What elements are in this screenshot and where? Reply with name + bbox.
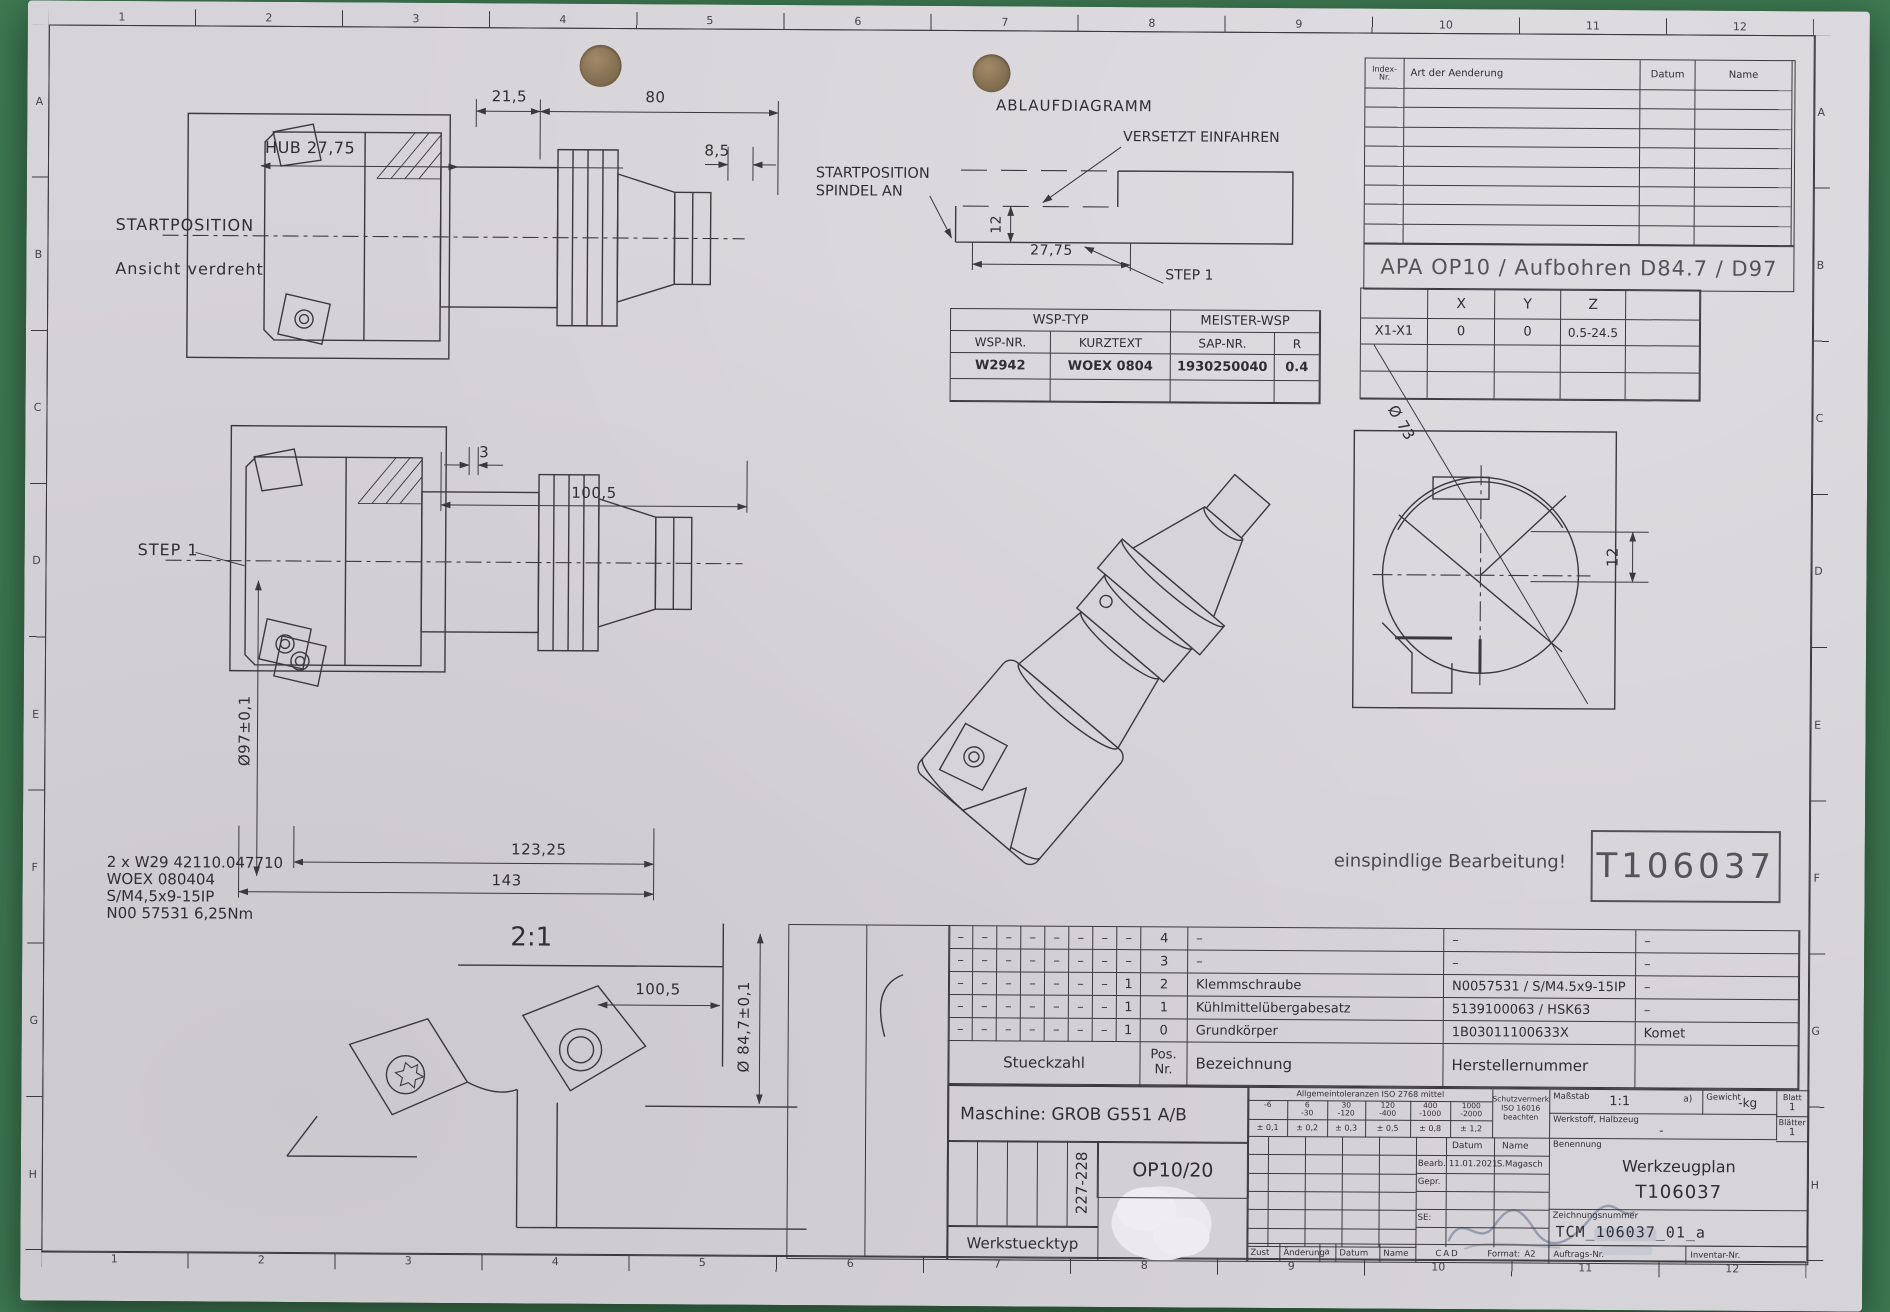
parts-table: –––––––– 4 – – – –––––––– 3 – – – ––––––… [947, 925, 1800, 1090]
qty-cell: – [949, 926, 973, 949]
parts-footer-qty: Stueckzahl [948, 1041, 1140, 1085]
appr-name-header: Name [1502, 1141, 1529, 1151]
revision-cell [1404, 205, 1640, 226]
qty-cell: – [949, 972, 973, 995]
revision-cell [1404, 166, 1640, 187]
wsp-col-sap: SAP-NR. [1171, 332, 1275, 355]
qty-cell: – [1093, 973, 1117, 996]
dim-21-5: 21,5 [492, 87, 528, 105]
revision-header-date: Datum [1640, 60, 1695, 90]
name2-label: Name [1383, 1249, 1408, 1259]
xyz-cell [1626, 373, 1700, 400]
maker-cell: Komet [1636, 1022, 1799, 1046]
qty-cell: – [949, 995, 973, 1018]
revision-cell [1404, 147, 1640, 168]
xyz-value-x: 0 [1428, 319, 1495, 345]
note-line-2: WOEX 080404 [107, 870, 216, 889]
revision-cell [1695, 110, 1792, 130]
detail-scale-label: 2:1 [510, 922, 552, 952]
werkstoff-label: Werkstoff, Halbzeug [1553, 1115, 1639, 1126]
blatt-cell: Blatt 1 [1776, 1091, 1808, 1117]
qty-cell: – [1021, 926, 1045, 949]
maker-cell: – [1636, 976, 1799, 1000]
wsp-value-kurztext: WOEX 0804 [1051, 354, 1171, 381]
dim-dia-97: Ø97±0,1 [235, 695, 253, 766]
xyz-header-y: Y [1495, 289, 1561, 319]
zeichnungsnummer-cell: Zeichnungsnummer TCM_106037_01_a [1548, 1209, 1807, 1248]
wsp-header-meister: MEISTER-WSP [1171, 310, 1320, 333]
gewicht-cell: Gewicht -kg [1702, 1091, 1777, 1115]
qty-cell: – [1069, 973, 1093, 996]
revision-cell [1404, 108, 1640, 129]
qty-cell: – [973, 995, 997, 1018]
massstab-value: 1:1 [1609, 1094, 1630, 1109]
wsp-header-typ: WSP-TYP [951, 309, 1171, 332]
revision-cell [1365, 205, 1404, 225]
maker-cell: – [1636, 930, 1799, 954]
benennung-line1: Werkzeugplan [1622, 1157, 1736, 1177]
wsp-col-r: R [1275, 333, 1320, 355]
revision-cell [1365, 108, 1404, 128]
tol-value: ± 0,1 [1248, 1123, 1287, 1132]
blaetter-value: 1 [1776, 1127, 1808, 1138]
xyz-cell [1561, 373, 1626, 400]
parts-footer-maker [1635, 1045, 1798, 1089]
revision-cell [1365, 89, 1404, 109]
bearb-datum: 11.01.2021 [1449, 1159, 1498, 1169]
revision-cell [1695, 188, 1792, 208]
blatt-value: 1 [1776, 1102, 1808, 1113]
a-label: a [1324, 1247, 1329, 1257]
parts-footer-pos: Pos. Nr. [1140, 1042, 1187, 1085]
startposition-label: STARTPOSITION [116, 215, 255, 235]
xyz-row-label: X1-X1 [1361, 319, 1428, 345]
revision-table: Index- Nr. Art der Aenderung Datum Name [1364, 58, 1796, 248]
revision-header-index: Index- Nr. [1365, 59, 1404, 89]
qty-cell: – [1069, 950, 1093, 973]
tol-range: 400 -1000 [1410, 1102, 1450, 1119]
tool-id-text: T106037 [1596, 846, 1775, 887]
tol-value: ± 0,5 [1365, 1124, 1410, 1133]
name-cell: Kühlmittelübergabesatz [1188, 996, 1444, 1021]
blaetter-label: Blätter [1776, 1118, 1808, 1127]
tol-range: 1000 -2000 [1450, 1102, 1492, 1119]
wsp-cell [951, 379, 1051, 402]
revision-cell [1695, 129, 1792, 149]
tb-grid-line [1248, 1228, 1416, 1230]
datum2-label: Datum [1339, 1248, 1368, 1258]
mfr-cell: 5139100063 / HSK63 [1444, 998, 1636, 1022]
tb-grid-line [1248, 1209, 1416, 1211]
name-cell: – [1188, 950, 1444, 975]
xyz-value-y: 0 [1495, 319, 1561, 345]
qty-cell: – [1045, 950, 1069, 973]
maker-cell: – [1636, 999, 1799, 1023]
wsp-col-nr: WSP-NR. [951, 331, 1051, 354]
qty-cell: – [973, 949, 997, 972]
revision-cell [1640, 187, 1695, 207]
wsp-value-nr: W2942 [951, 353, 1051, 380]
qty-cell: – [997, 995, 1021, 1018]
cad-label: CAD [1435, 1249, 1459, 1259]
op-cell: OP10/20 [1097, 1141, 1249, 1199]
wsp-cell [1051, 380, 1171, 403]
schutz-line: Schutzvermerk [1492, 1094, 1549, 1103]
machine-label: Maschine: GROB G551 A/B [948, 1104, 1187, 1125]
revision-cell [1404, 186, 1640, 207]
revision-cell [1695, 149, 1792, 169]
tol-range: 6 -30 [1287, 1101, 1327, 1118]
ablauf-title: ABLAUFDIAGRAMM [996, 96, 1153, 115]
dim-27-75: 27,75 [1030, 243, 1073, 259]
note-line-4: N00 57531 6,25Nm [106, 904, 253, 923]
revision-cell [1640, 129, 1695, 149]
pos-cell: 0 [1141, 1019, 1188, 1042]
tol-value: ± 0,8 [1410, 1124, 1450, 1133]
revision-cell [1640, 90, 1695, 110]
blatt-label: Blatt [1776, 1093, 1808, 1102]
auftrag-label: Auftrags-Nr. [1553, 1250, 1604, 1260]
dim-143: 143 [491, 871, 521, 889]
startposition-spindel-label: STARTPOSITION [816, 165, 930, 182]
qty-cell: 1 [1117, 1019, 1141, 1042]
werkstueck-range: 227-228 [1073, 1151, 1091, 1214]
bearb-name: S.Magasch [1497, 1159, 1543, 1169]
xyz-cell [1428, 372, 1495, 399]
qty-cell: – [1117, 950, 1141, 973]
xyz-cell [1495, 345, 1561, 372]
parts-footer-mfr: Herstellernummer [1443, 1044, 1635, 1088]
se-label: SE: [1418, 1213, 1432, 1223]
wsp-value-sap: 1930250040 [1171, 354, 1275, 381]
revision-cell [1404, 89, 1640, 110]
xyz-value-z: 0.5-24.5 [1561, 320, 1626, 346]
qty-cell: – [1045, 1019, 1069, 1042]
tol-value: ± 0,3 [1327, 1123, 1365, 1132]
qty-cell: – [1117, 927, 1141, 950]
tool-id-box: T106037 [1591, 830, 1781, 903]
gewicht-label: Gewicht [1706, 1093, 1741, 1103]
xyz-cell [1626, 320, 1700, 346]
dim-12-ablauf: 12 [989, 215, 1005, 234]
pos-cell: 2 [1141, 973, 1188, 996]
dim-hub: HUB 27,75 [265, 138, 355, 158]
qty-cell: – [1093, 996, 1117, 1019]
dim-3: 3 [479, 443, 489, 461]
name-cell: – [1188, 927, 1444, 952]
xyz-cell [1626, 290, 1700, 320]
xyz-cell [1495, 372, 1561, 399]
dim-12-front: 12 [1604, 547, 1622, 567]
pos-cell: 3 [1141, 950, 1188, 973]
qty-cell: – [997, 972, 1021, 995]
revision-cell [1640, 168, 1695, 188]
mfr-cell: 1B03011100633X [1444, 1021, 1636, 1045]
tb-grid-line [1248, 1173, 1416, 1175]
aenderung-label: Änderung [1283, 1248, 1325, 1258]
tolerance-title: Allgemeintoleranzen ISO 2768 mittel [1248, 1089, 1492, 1099]
qty-cell: – [1069, 927, 1093, 950]
step1-label-ablauf: STEP 1 [1165, 267, 1213, 283]
tol-value: ± 0,2 [1287, 1123, 1327, 1132]
xyz-table: X Y Z X1-X1 0 0 0.5-24.5 [1360, 288, 1702, 402]
dim-80: 80 [645, 88, 665, 106]
appr-line [1416, 1227, 1549, 1229]
machine-row: Maschine: GROB G551 A/B [947, 1085, 1249, 1144]
dim-dia-84-7: Ø 84,7±0,1 [734, 981, 753, 1073]
bearb-label: Bearb. [1418, 1159, 1446, 1169]
versetzt-einfahren-label: VERSETZT EINFAHREN [1123, 129, 1280, 146]
dim-123-25: 123,25 [511, 840, 567, 858]
xyz-cell [1361, 345, 1428, 372]
tb-left-grid [1247, 1136, 1417, 1248]
name-cell: Grundkörper [1188, 1019, 1444, 1044]
maker-cell: – [1636, 953, 1799, 977]
tbb-line [1685, 1247, 1686, 1265]
zust-label: Zust [1250, 1248, 1269, 1258]
mfr-cell: N0057531 / S/M4.5x9-15IP [1444, 975, 1636, 999]
znr-value: TCM_106037_01_a [1555, 1223, 1706, 1242]
revision-cell [1695, 168, 1792, 188]
werkstoff-value: - [1659, 1123, 1663, 1137]
mfr-cell: – [1444, 929, 1636, 953]
revision-cell [1640, 148, 1695, 168]
werkstoff-cell: Werkstoff, Halbzeug - [1549, 1113, 1777, 1140]
tolerance-table: Allgemeintoleranzen ISO 2768 mittel -6 6… [1248, 1088, 1493, 1138]
dim-8-5: 8,5 [704, 142, 729, 160]
appr-line [1416, 1209, 1549, 1211]
tbb-line [1415, 1245, 1416, 1263]
tbb-line [1279, 1244, 1280, 1262]
tbb-line [1548, 1246, 1549, 1264]
qty-cell: – [1093, 1019, 1117, 1042]
schutz-line: ISO 16016 [1492, 1103, 1549, 1112]
qty-cell: – [997, 1018, 1021, 1041]
tb-grid-line [1248, 1191, 1416, 1193]
drawing-content: 1 2 3 4 5 6 7 8 9 10 11 12 1 2 3 4 5 6 7… [20, 0, 1870, 1311]
revision-cell [1365, 147, 1404, 167]
format-value: A2 [1524, 1250, 1535, 1260]
wsp-cell [1275, 381, 1320, 403]
spindel-an-label: SPINDEL AN [816, 183, 903, 200]
qty-cell: – [1093, 950, 1117, 973]
benennung-cell: Benennung Werkzeugplan T106037 [1549, 1138, 1808, 1212]
xyz-header-x: X [1428, 289, 1495, 319]
empty-side-box [786, 924, 950, 1260]
xyz-cell [1626, 346, 1700, 373]
op-label: OP10/20 [1132, 1159, 1213, 1181]
gewicht-value: -kg [1738, 1096, 1757, 1110]
revision-cell [1695, 226, 1792, 246]
dim-100-5-v1: 100,5 [571, 484, 617, 502]
appr-line [1416, 1191, 1549, 1193]
qty-cell: – [1045, 973, 1069, 996]
revision-cell [1365, 166, 1404, 186]
dim-100-5-detail: 100,5 [635, 980, 681, 998]
name-cell: Klemmschraube [1188, 973, 1444, 998]
appr-datum-header: Datum [1452, 1141, 1483, 1151]
wsp-col-kurztext: KURZTEXT [1051, 332, 1171, 355]
revision-header-name: Name [1695, 61, 1792, 92]
benennung-label: Benennung [1553, 1140, 1602, 1150]
revision-cell [1365, 127, 1404, 147]
format-label: Format: [1487, 1249, 1520, 1259]
tb-bottom-row: Zust Änderung a Datum Name CAD Format: A… [1247, 1243, 1807, 1265]
tbb-line [1335, 1244, 1336, 1262]
qty-cell: – [973, 1018, 997, 1041]
operation-banner: APA OP10 / Aufbohren D84.7 / D97 [1363, 243, 1794, 293]
step1-label-view2: STEP 1 [138, 540, 199, 559]
drawing-sheet: 1 2 3 4 5 6 7 8 9 10 11 12 1 2 3 4 5 6 7… [20, 0, 1870, 1311]
ansicht-verdreht-label: Ansicht verdreht [115, 259, 264, 279]
revision-cell [1640, 226, 1695, 246]
qty-cell: – [1021, 972, 1045, 995]
appr-line [1416, 1155, 1549, 1157]
pos-cell: 4 [1141, 927, 1188, 950]
qty-cell: – [949, 1018, 973, 1041]
qty-cell: – [1045, 927, 1069, 950]
qty-cell: – [997, 926, 1021, 949]
revision-cell [1695, 207, 1792, 227]
qty-cell: – [1069, 1019, 1093, 1042]
wsp-value-r: 0.4 [1275, 355, 1320, 381]
wsp-table: WSP-TYP MEISTER-WSP WSP-NR. KURZTEXT SAP… [950, 308, 1322, 404]
revision-cell [1404, 128, 1640, 149]
qty-cell: – [1069, 996, 1093, 1019]
schutz-line: beachten [1492, 1112, 1549, 1121]
massstab-label: Maßstab [1553, 1092, 1589, 1102]
tb-grid-line [1248, 1154, 1416, 1156]
revision-cell [1640, 207, 1695, 227]
tbb-line [1379, 1245, 1380, 1263]
qty-cell: – [1045, 996, 1069, 1019]
qty-cell: – [973, 972, 997, 995]
tol-range: 120 -400 [1365, 1102, 1410, 1119]
tol-line [1248, 1119, 1492, 1121]
qty-cell: – [1021, 1018, 1045, 1041]
benennung-line2: T106037 [1635, 1182, 1722, 1204]
inventar-label: Inventar-Nr. [1690, 1251, 1740, 1261]
qty-cell: – [973, 926, 997, 949]
revision-cell [1695, 91, 1792, 111]
revision-cell [1365, 186, 1404, 206]
tol-range: 30 -120 [1327, 1101, 1365, 1118]
gepr-label: Gepr. [1418, 1177, 1441, 1187]
revision-cell [1365, 224, 1404, 244]
qty-cell: – [1021, 949, 1045, 972]
note-line-3: S/M4,5x9-15IP [106, 887, 214, 906]
xyz-header-z: Z [1561, 290, 1626, 320]
werkstuecktyp-cell: Werkstuecktyp [946, 1225, 1098, 1261]
qty-cell: – [1093, 927, 1117, 950]
appr-line [1416, 1173, 1549, 1175]
revision-header-change: Art der Aenderung [1404, 59, 1640, 90]
wsp-cell [1171, 380, 1275, 403]
xyz-cell [1561, 346, 1626, 373]
qty-cell: – [949, 949, 973, 972]
werkstuecktyp-label: Werkstuecktyp [967, 1234, 1079, 1253]
schutzvermerk-cell: Schutzvermerk ISO 16016 beachten [1492, 1089, 1550, 1138]
mfr-cell: – [1444, 952, 1636, 976]
operation-banner-text: APA OP10 / Aufbohren D84.7 / D97 [1380, 254, 1777, 280]
massstab-cell: Maßstab 1:1 a) [1549, 1090, 1703, 1115]
approvals-table: Datum Name Bearb. 11.01.2021 S.Magasch G… [1415, 1137, 1550, 1248]
xyz-cell [1361, 372, 1428, 399]
qty-cell: – [1021, 995, 1045, 1018]
znr-label: Zeichnungsnummer [1553, 1211, 1639, 1222]
xyz-cell [1361, 289, 1428, 319]
revision-cell [1640, 110, 1695, 130]
einspindlig-note: einspindlige Bearbeitung! [1334, 850, 1566, 872]
a-mark: a) [1683, 1095, 1692, 1105]
tol-range: -6 [1248, 1101, 1287, 1109]
qty-cell: – [997, 949, 1021, 972]
qty-cell: 1 [1117, 996, 1141, 1019]
parts-footer-name: Bezeichnung [1187, 1042, 1443, 1087]
tol-value: ± 1,2 [1450, 1124, 1492, 1133]
qty-cell: 1 [1117, 973, 1141, 996]
pos-cell: 1 [1141, 996, 1188, 1019]
title-block: Allgemeintoleranzen ISO 2768 mittel -6 6… [1246, 1087, 1809, 1265]
xyz-cell [1428, 345, 1495, 372]
